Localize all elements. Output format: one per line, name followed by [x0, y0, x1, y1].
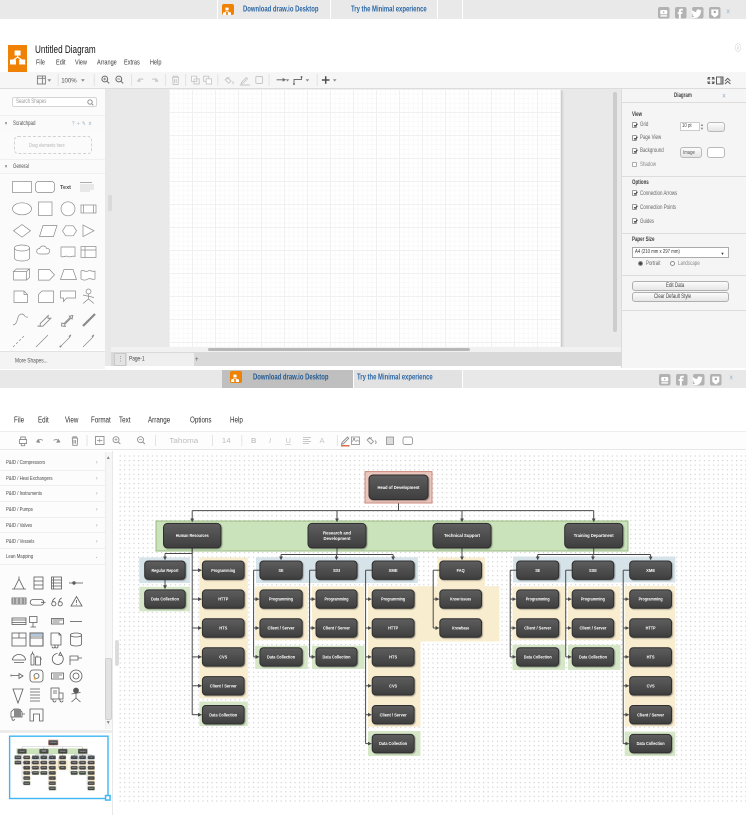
svg-text:Client / Server: Client / Server — [268, 626, 295, 631]
svg-text:Training Department: Training Department — [574, 533, 614, 538]
svg-text:HTTP: HTTP — [388, 626, 398, 631]
svg-text:HTTP: HTTP — [218, 597, 228, 602]
svg-text:Client / Server: Client / Server — [380, 712, 407, 717]
svg-text:XME: XME — [389, 568, 398, 573]
svg-text:Client / Server: Client / Server — [323, 626, 350, 631]
svg-text:HTS: HTS — [219, 626, 227, 631]
svg-text:FAQ: FAQ — [457, 568, 465, 573]
svg-text:B: B — [251, 436, 257, 445]
svg-text:I: I — [269, 436, 271, 445]
svg-text:Client / Server: Client / Server — [210, 683, 237, 688]
svg-text:CVS: CVS — [219, 655, 227, 660]
svg-text:XME: XME — [646, 568, 655, 573]
svg-text:Data Collection: Data Collection — [323, 655, 351, 660]
svg-text:Programming: Programming — [639, 597, 663, 602]
svg-text:HTS: HTS — [389, 655, 397, 660]
svg-text:HTTP: HTTP — [646, 626, 656, 631]
svg-text:Programming: Programming — [269, 597, 293, 602]
svg-text:Programming: Programming — [581, 597, 605, 602]
svg-text:Client / Server: Client / Server — [524, 626, 551, 631]
svg-text:Data Collection: Data Collection — [267, 655, 295, 660]
svg-text:SSE: SSE — [589, 568, 597, 573]
svg-text:HTS: HTS — [647, 655, 655, 660]
svg-text:Text: Text — [60, 185, 71, 191]
svg-text:Tahoma: Tahoma — [169, 438, 198, 445]
svg-text:Client / Server: Client / Server — [579, 626, 606, 631]
svg-text:Research and: Research and — [323, 530, 351, 535]
svg-text:Data Collection: Data Collection — [151, 597, 179, 602]
svg-text:Data Collection: Data Collection — [524, 655, 552, 660]
svg-text:SE: SE — [279, 568, 284, 573]
svg-text:U: U — [286, 436, 291, 445]
svg-text:Head of Development: Head of Development — [378, 485, 420, 490]
svg-text:A: A — [320, 436, 325, 445]
svg-text:SSI: SSI — [333, 568, 340, 573]
svg-text:Programming: Programming — [211, 568, 235, 573]
svg-text:Programming: Programming — [526, 597, 550, 602]
svg-text:Development: Development — [324, 536, 351, 541]
svg-text:Data Collection: Data Collection — [379, 741, 407, 746]
svg-text:Regular Report: Regular Report — [151, 568, 178, 573]
svg-text:Human Resources: Human Resources — [176, 533, 209, 538]
svg-text:100%: 100% — [61, 78, 76, 85]
svg-text:Programming: Programming — [381, 597, 405, 602]
svg-text:Data Collection: Data Collection — [579, 655, 607, 660]
svg-text:Knowbase: Knowbase — [452, 626, 469, 631]
svg-text:Programming: Programming — [325, 597, 349, 602]
svg-text:CVS: CVS — [647, 683, 655, 688]
svg-text:Know Issues: Know Issues — [450, 597, 471, 602]
svg-text:CVS: CVS — [389, 683, 397, 688]
svg-text:SE: SE — [535, 568, 540, 573]
svg-text:Data Collection: Data Collection — [209, 712, 237, 717]
svg-text:Client / Server: Client / Server — [637, 712, 664, 717]
svg-text:14: 14 — [222, 438, 231, 445]
svg-text:Data Collection: Data Collection — [637, 741, 665, 746]
svg-text:Technical Support: Technical Support — [444, 533, 480, 538]
